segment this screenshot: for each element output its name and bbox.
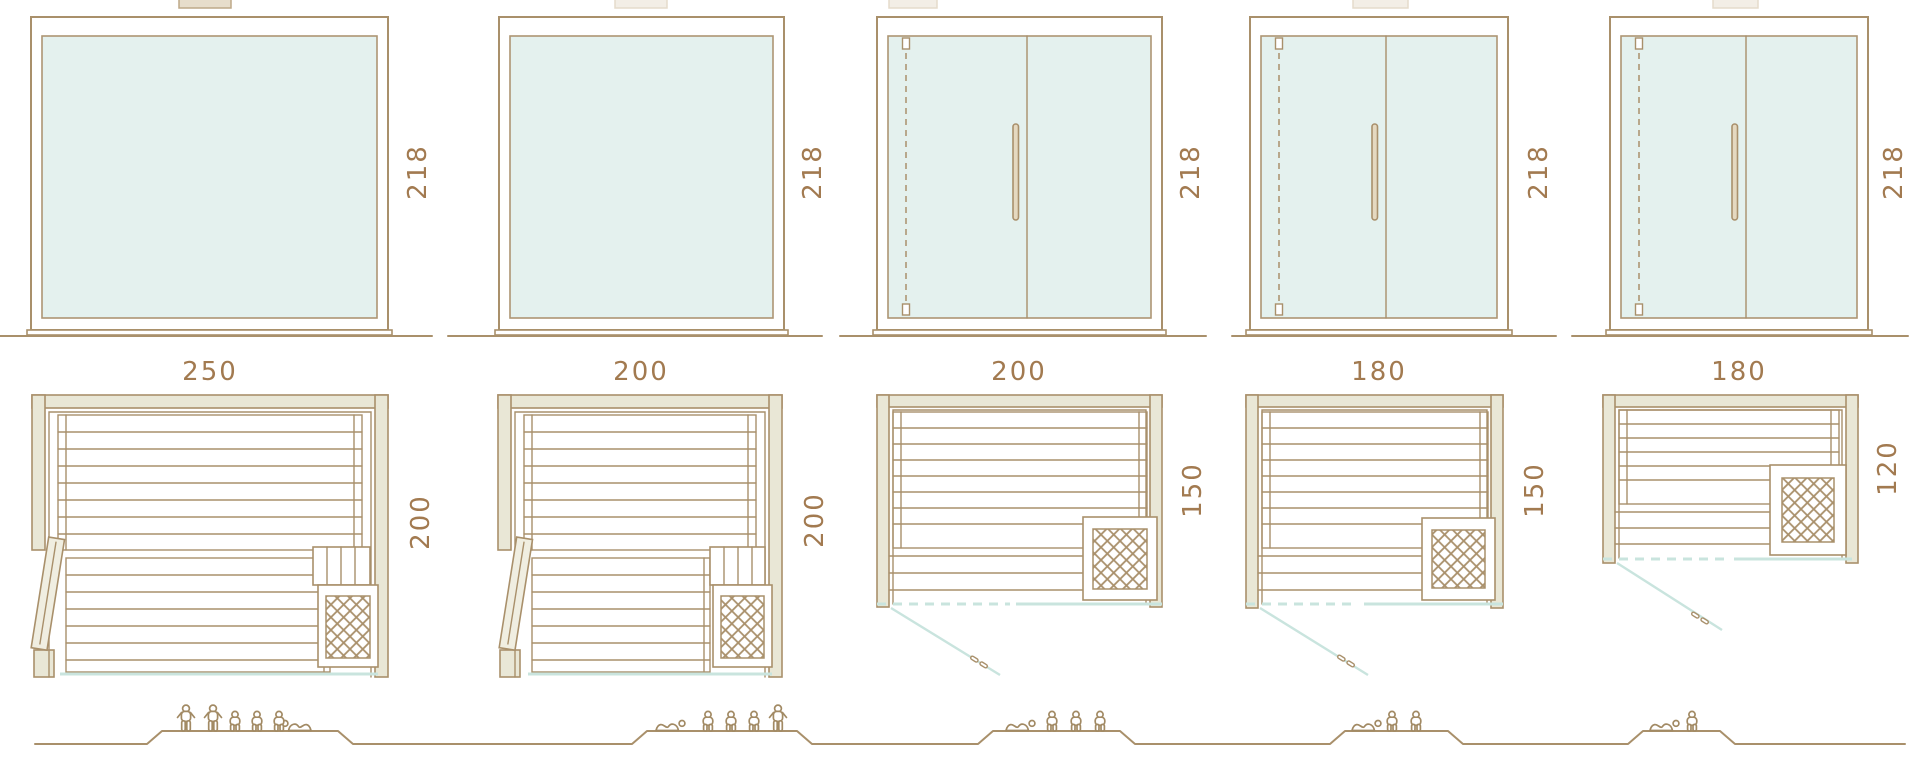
person-lying-icon [282, 721, 311, 731]
depth-dimension-4: 150 [1520, 462, 1550, 518]
glass-panel [1621, 36, 1857, 318]
person-standing-icon [178, 705, 195, 731]
person-seated-icon [1047, 711, 1057, 731]
upper-bench [58, 415, 362, 550]
person-lying-icon [1006, 721, 1035, 731]
roof-vent-icons [179, 0, 1758, 8]
capacity-group-3 [1006, 711, 1105, 731]
width-dimension-5: 180 [1711, 357, 1767, 387]
wall-back [32, 395, 388, 408]
height-dimension-2: 218 [798, 144, 828, 200]
front-elevation-5 [1606, 17, 1872, 335]
door-handle-icon [1013, 124, 1019, 220]
person-seated-icon [1387, 711, 1397, 731]
wall-left [1246, 395, 1258, 608]
base-sill [27, 330, 392, 335]
wall-left-stub [34, 650, 54, 677]
height-dimension-1: 218 [403, 144, 433, 200]
door-handle-icon [1372, 124, 1378, 220]
wall-left [32, 395, 45, 550]
hinge-icon [1276, 304, 1283, 315]
floor-plan-3 [877, 395, 1162, 675]
door-handle-icon [1732, 124, 1738, 220]
open-door-leaf [499, 537, 532, 650]
depth-dimension-2: 200 [800, 492, 830, 548]
front-elevation-1 [27, 17, 392, 335]
sauna-heater-icon [318, 585, 378, 667]
width-dimension-2: 200 [613, 357, 669, 387]
wall-left [1603, 395, 1615, 563]
depth-dimension-3: 150 [1178, 462, 1208, 518]
terrain-line [35, 731, 1905, 744]
hinge-icon [903, 304, 910, 315]
sauna-size-diagram: 218 218 218 218 218 250 200 200 180 180 [0, 0, 1920, 770]
person-lying-icon [1650, 721, 1679, 731]
base-sill [873, 330, 1166, 335]
depth-dimension-5: 120 [1873, 440, 1903, 496]
width-dimension-4: 180 [1351, 357, 1407, 387]
floor-plan-5 [1603, 395, 1858, 630]
duckboard [710, 547, 765, 585]
person-seated-icon [1095, 711, 1105, 731]
person-seated-icon [726, 711, 736, 731]
glass-panel [510, 36, 773, 318]
sauna-heater-icon [713, 585, 772, 667]
glass-panel [42, 36, 377, 318]
person-seated-icon [1411, 711, 1421, 731]
base-sill [495, 330, 788, 335]
person-seated-icon [252, 711, 262, 731]
lower-bench [532, 558, 710, 672]
glass-panel [888, 36, 1151, 318]
person-seated-icon [1687, 711, 1697, 731]
front-elevation-2 [495, 17, 788, 335]
front-elevation-4 [1246, 17, 1512, 335]
sauna-heater-icon [1770, 465, 1846, 555]
capacity-group-2 [656, 705, 787, 731]
depth-dimension-1: 200 [406, 494, 436, 550]
capacity-group-4 [1352, 711, 1421, 731]
width-dimension-1: 250 [182, 357, 238, 387]
person-seated-icon [230, 711, 240, 731]
base-sill [1246, 330, 1512, 335]
capacity-group-5 [1650, 711, 1697, 731]
roof-vent-icon [615, 0, 667, 8]
person-seated-icon [703, 711, 713, 731]
floor-plan-1 [31, 395, 388, 677]
person-seated-icon [274, 711, 284, 731]
glass-panel [1261, 36, 1497, 318]
wall-back [498, 395, 782, 408]
hinge-icon [903, 38, 910, 49]
sauna-heater-icon [1083, 517, 1157, 600]
open-door-leaf [31, 537, 64, 650]
roof-vent-icon [1713, 0, 1758, 8]
wall-left [498, 395, 511, 550]
roof-vent-icon [1353, 0, 1408, 8]
base-sill [1606, 330, 1872, 335]
hinge-icon [1636, 304, 1643, 315]
sauna-heater-icon [1422, 518, 1495, 600]
wall-left-stub [500, 650, 520, 677]
person-seated-icon [1071, 711, 1081, 731]
roof-vent-icon [179, 0, 231, 8]
person-lying-icon [656, 721, 685, 731]
height-dimension-4: 218 [1524, 144, 1554, 200]
wall-back [1246, 395, 1503, 407]
hinge-icon [1636, 38, 1643, 49]
diagram-canvas: 218 218 218 218 218 250 200 200 180 180 [0, 0, 1920, 770]
door-handle-icon [1691, 612, 1709, 625]
duckboard [313, 547, 370, 585]
roof-vent-icon [889, 0, 937, 8]
height-dimension-3: 218 [1176, 144, 1206, 200]
wall-right [1846, 395, 1858, 563]
floor-plan-4 [1246, 395, 1503, 675]
floor-plan-2 [498, 395, 782, 677]
lower-bench [66, 558, 330, 672]
person-standing-icon [205, 705, 222, 731]
wall-back [877, 395, 1162, 407]
wall-back [1603, 395, 1858, 407]
width-dimension-3: 200 [991, 357, 1047, 387]
person-lying-icon [1352, 721, 1381, 731]
person-standing-icon [770, 705, 787, 731]
hinge-icon [1276, 38, 1283, 49]
wall-left [877, 395, 889, 607]
height-dimension-5: 218 [1879, 144, 1909, 200]
upper-bench [524, 415, 756, 550]
front-elevation-3 [873, 17, 1166, 335]
person-seated-icon [749, 711, 759, 731]
capacity-group-1 [178, 705, 312, 731]
